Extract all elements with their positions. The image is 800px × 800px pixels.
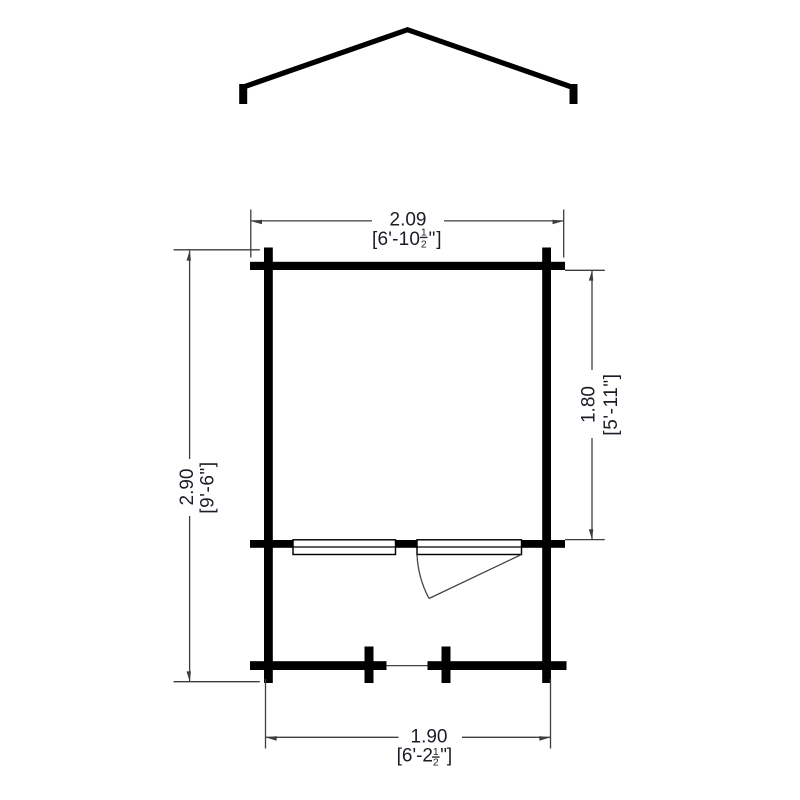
svg-text:1.80: 1.80 — [579, 386, 600, 423]
svg-text:[5'-11"]: [5'-11"] — [601, 373, 622, 435]
svg-text:1.90: 1.90 — [411, 727, 448, 748]
svg-text:2.90: 2.90 — [177, 469, 198, 506]
svg-text:"]: "] — [429, 229, 443, 250]
svg-text:2: 2 — [433, 756, 439, 768]
svg-text:[9'-6"]: [9'-6"] — [197, 461, 218, 514]
svg-text:[6'-10: [6'-10 — [372, 229, 420, 250]
svg-text:[6'-2: [6'-2 — [397, 746, 433, 767]
svg-text:"]: "] — [440, 746, 452, 767]
svg-text:2: 2 — [421, 238, 427, 250]
